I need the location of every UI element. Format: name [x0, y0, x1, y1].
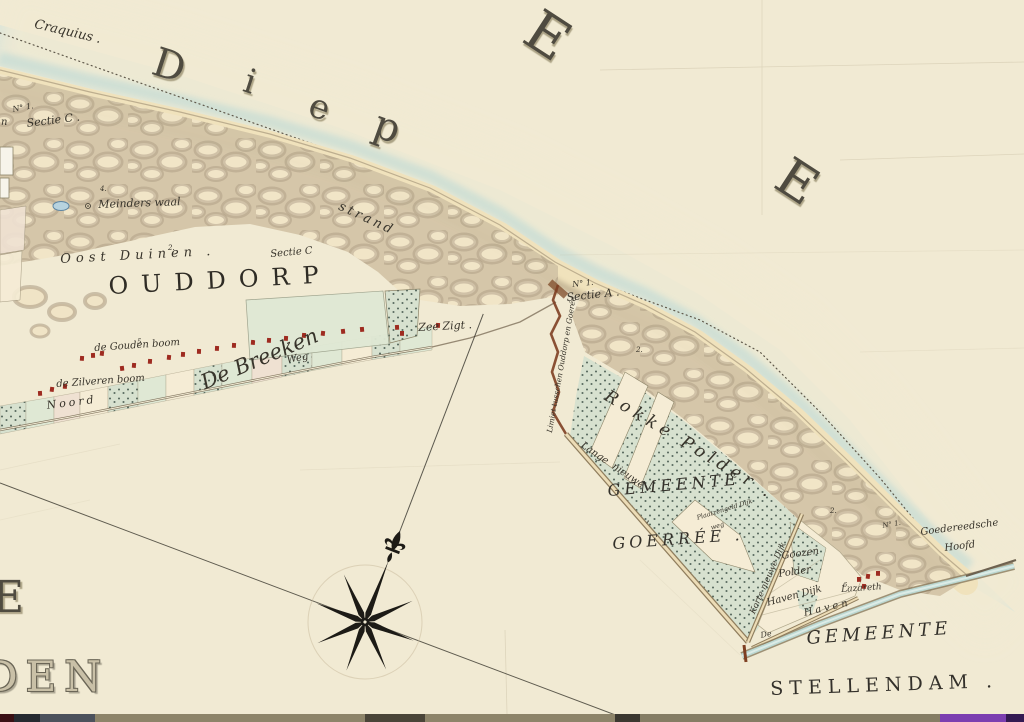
house-mark	[267, 338, 271, 343]
house-mark	[181, 352, 185, 357]
bottom-strip-segment	[1006, 714, 1024, 722]
bottom-strip-segment	[0, 714, 14, 722]
bottom-strip-segment	[365, 714, 425, 722]
map-artwork	[0, 0, 1024, 722]
house-mark	[148, 359, 152, 364]
house-mark	[251, 340, 255, 345]
house-mark	[38, 391, 42, 396]
house-mark	[321, 331, 326, 336]
house-mark	[302, 333, 306, 338]
house-mark	[341, 329, 346, 334]
house-mark	[63, 384, 67, 389]
bottom-strip-segment	[615, 714, 640, 722]
house-mark	[120, 366, 125, 371]
house-mark	[215, 346, 219, 351]
bottom-edge-strip	[0, 714, 1024, 722]
house-mark	[395, 325, 399, 330]
house-mark	[436, 323, 440, 328]
house-mark	[862, 584, 866, 589]
house-mark	[876, 571, 880, 576]
house-mark	[132, 363, 136, 368]
house-mark	[360, 327, 364, 332]
house-mark	[50, 387, 55, 392]
house-mark	[400, 331, 404, 336]
house-mark	[197, 349, 201, 354]
bottom-strip-segment	[425, 714, 615, 722]
house-mark	[100, 351, 105, 356]
bottom-strip-segment	[14, 714, 40, 722]
bottom-strip-segment	[95, 714, 365, 722]
house-mark	[284, 336, 288, 341]
house-mark	[232, 343, 236, 348]
bottom-strip-segment	[40, 714, 95, 722]
bottom-strip-segment	[640, 714, 940, 722]
map-viewport[interactable]: Craquius .DiepEEnN° 1.Sectie C .4.Meinde…	[0, 0, 1024, 722]
house-mark	[857, 577, 861, 582]
house-mark	[91, 353, 95, 358]
house-mark	[167, 355, 171, 360]
house-mark	[866, 574, 871, 579]
bottom-strip-segment	[940, 714, 1006, 722]
house-mark	[80, 356, 84, 361]
